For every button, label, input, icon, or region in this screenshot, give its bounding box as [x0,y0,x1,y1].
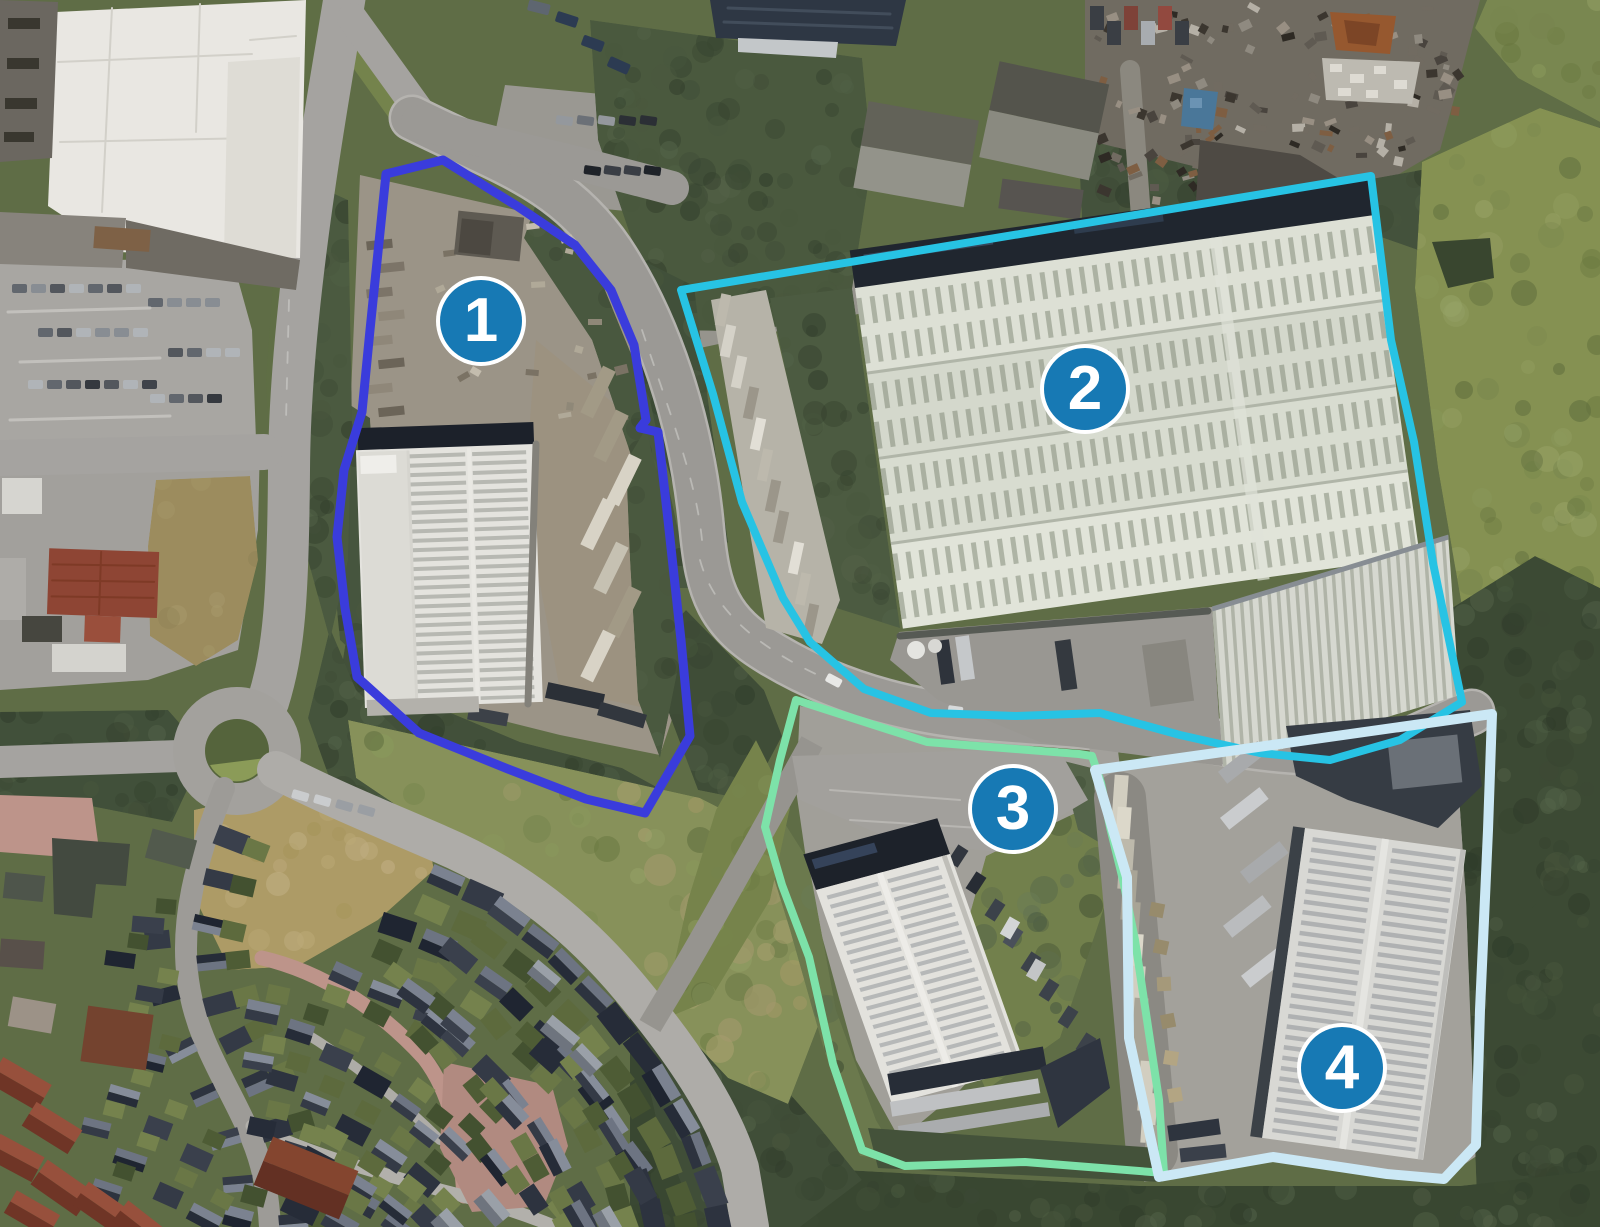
svg-text:1: 1 [464,286,498,355]
svg-text:2: 2 [1068,354,1102,423]
svg-text:4: 4 [1325,1033,1360,1102]
svg-text:3: 3 [996,774,1030,843]
